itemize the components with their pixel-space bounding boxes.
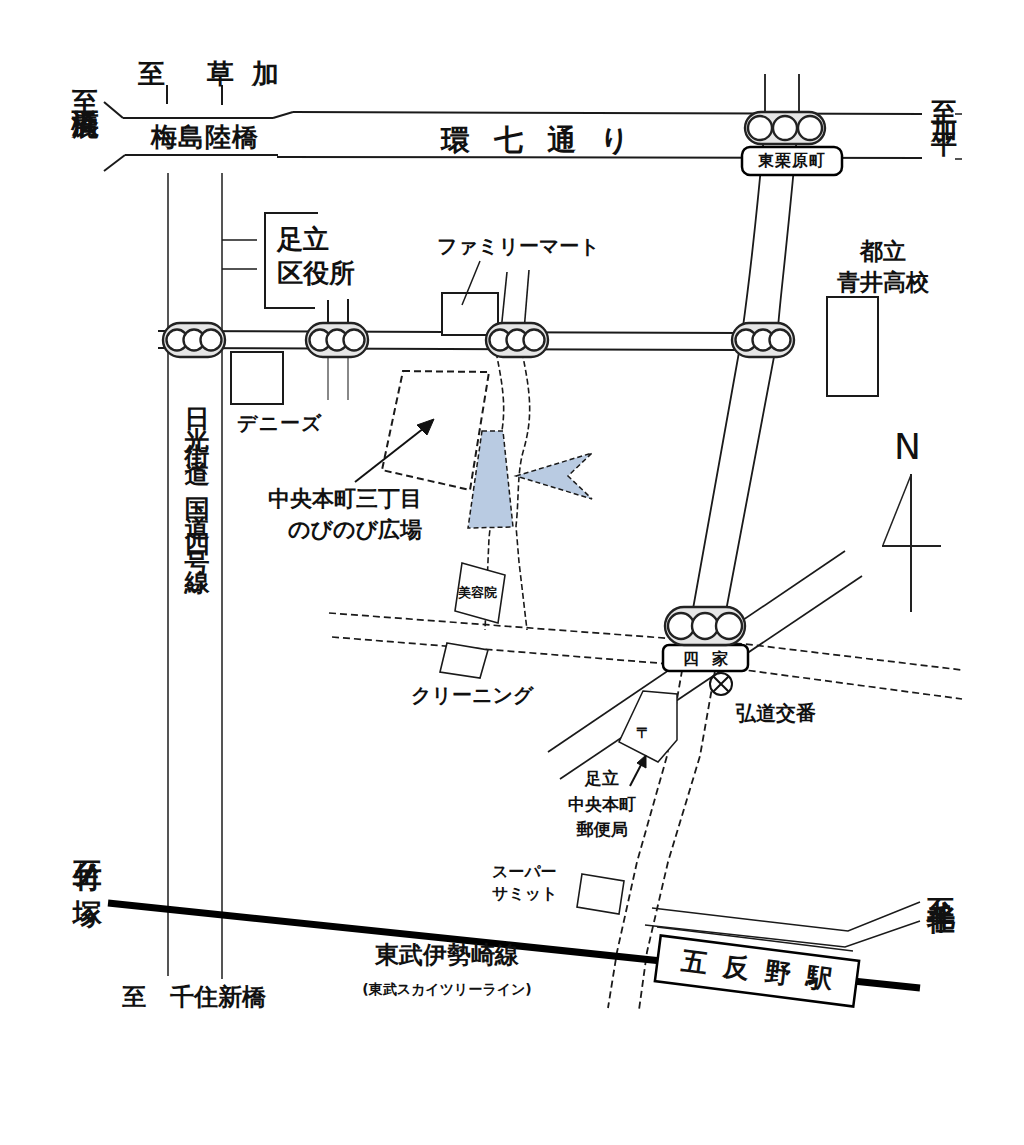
- dest-takenotsuka: 至竹ノ塚: [68, 838, 106, 879]
- aoi-high-label: 都立 青井高校: [813, 236, 953, 298]
- dest-senju-shinbashi: 至千住新橋: [122, 982, 266, 1013]
- familymart-label: ファミリーマート: [437, 233, 600, 259]
- railway-sub-label: (東武スカイツリーライン): [347, 980, 547, 998]
- access-map: 至鹿浜橋 至草加 梅島陸橋 環七通り 至加平 東栗原町 足立 区役所 ファミリー…: [0, 0, 1024, 1145]
- traffic-light-4: [732, 323, 794, 357]
- traffic-light-2: [306, 323, 368, 357]
- cleaning-label: クリーニング: [411, 682, 533, 708]
- dennys-building: [231, 352, 283, 404]
- plaza-outline: [382, 371, 489, 490]
- dest-soka: 至草加: [138, 56, 297, 91]
- beauty-salon-label: 美容院: [458, 585, 497, 602]
- cleaning-building: [440, 643, 488, 678]
- dennys-label: デニーズ: [237, 410, 322, 436]
- umejima-bridge-label: 梅島陸橋: [151, 121, 259, 155]
- traffic-light-1: [163, 323, 225, 357]
- plaza-label: 中央本町三丁目 のびのび広場: [240, 484, 422, 546]
- railway-label: 東武伊勢崎線: [347, 940, 547, 971]
- map-geometry: [0, 0, 1024, 1145]
- dest-kita-senju: 至北千住: [922, 876, 958, 888]
- traffic-light-yotsuya: [665, 607, 745, 645]
- dest-kahei: 至加平: [927, 80, 961, 128]
- pointer-arrow: [516, 453, 592, 499]
- nikko-kaido-label: 日光街道（国道四号線）: [180, 388, 213, 586]
- north-arrow-icon: [882, 474, 941, 612]
- compass-n-label: N: [894, 424, 921, 471]
- kannana-label: 環七通り: [441, 122, 654, 160]
- koban-label: 弘道交番: [736, 700, 816, 726]
- traffic-light-kannana: [745, 112, 825, 144]
- kurihara-gotanno-road: [608, 74, 799, 1010]
- traffic-light-3: [486, 323, 548, 357]
- kurihara-intersection-label: 東栗原町: [742, 151, 842, 172]
- dest-shikahama: 至鹿浜橋: [68, 68, 103, 88]
- aoi-high-building: [827, 297, 878, 396]
- ward-office-label: 足立 区役所: [277, 222, 355, 291]
- post-mark-symbol: 〒: [636, 724, 651, 744]
- yotsuya-intersection-label: 四家: [663, 649, 748, 670]
- summit-label: スーパー サミット: [492, 861, 558, 906]
- koban-icon: [710, 673, 732, 695]
- post-office-label: 足立 中央本町 郵便局: [552, 766, 652, 843]
- summit-building: [577, 874, 624, 914]
